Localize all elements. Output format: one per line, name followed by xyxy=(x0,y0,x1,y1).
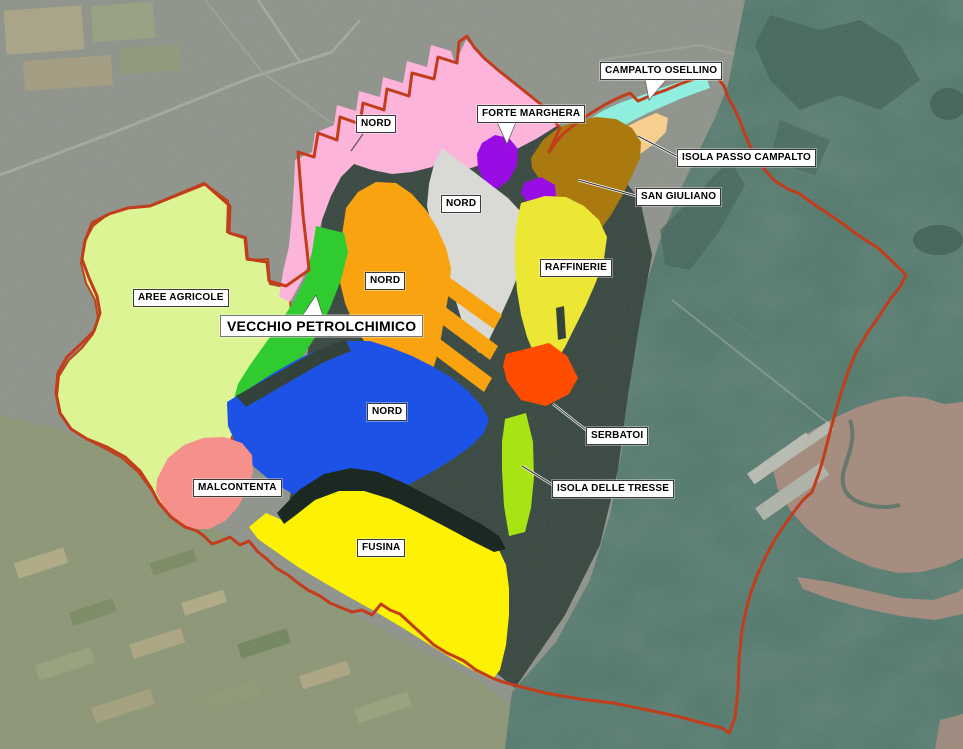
satellite-zoning-map: CAMPALTO OSELLINO FORTE MARGHERA ISOLA P… xyxy=(0,0,963,749)
label-forte-marghera: FORTE MARGHERA xyxy=(477,105,585,123)
label-aree-agricole: AREE AGRICOLE xyxy=(133,289,229,307)
label-fusina: FUSINA xyxy=(357,539,405,557)
label-nord-gray: NORD xyxy=(441,195,481,213)
label-isola-delle-tresse: ISOLA DELLE TRESSE xyxy=(552,480,674,498)
label-san-giuliano: SAN GIULIANO xyxy=(636,188,721,206)
label-raffinerie: RAFFINERIE xyxy=(540,259,612,277)
label-nord-pink: NORD xyxy=(356,115,396,133)
label-vecchio-petrolchimico: VECCHIO PETROLCHIMICO xyxy=(220,315,423,337)
label-campalto-osellino: CAMPALTO OSELLINO xyxy=(600,62,722,80)
label-nord-blue: NORD xyxy=(367,403,407,421)
label-serbatoi: SERBATOI xyxy=(586,427,648,445)
label-malcontenta: MALCONTENTA xyxy=(193,479,282,497)
label-isola-passo-campalto: ISOLA PASSO CAMPALTO xyxy=(677,149,816,167)
label-nord-orange: NORD xyxy=(365,272,405,290)
